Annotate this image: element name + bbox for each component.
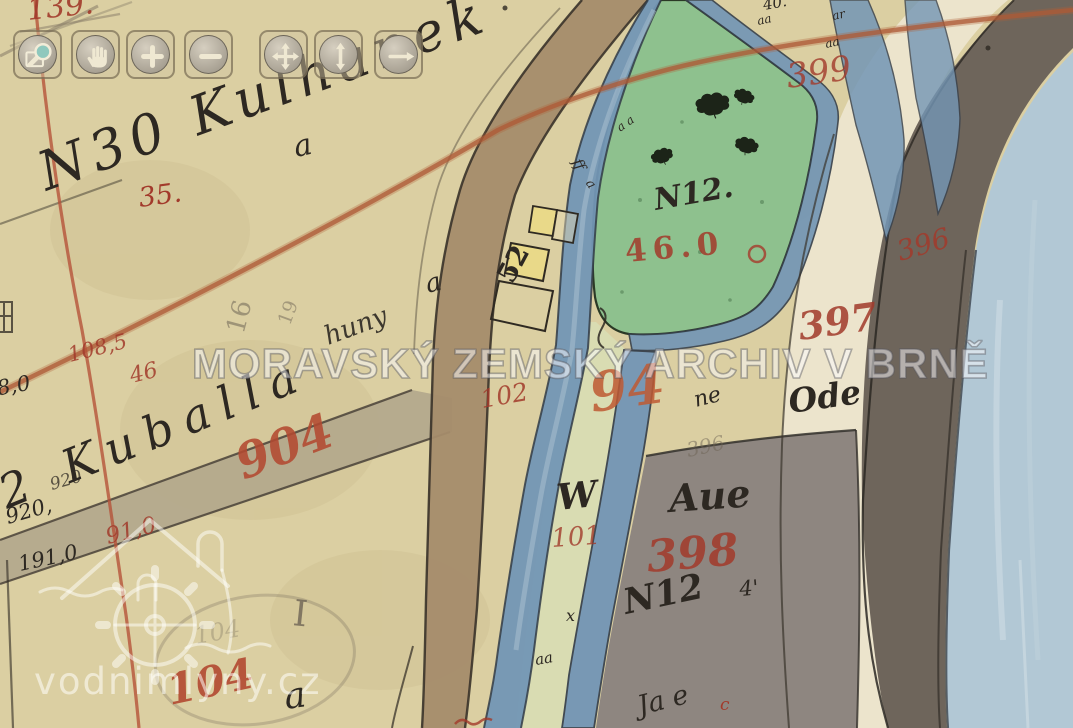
map-viewer[interactable]: 139.N30 Kulhaneka35.1619hunya2 Kuballa10… [0,0,1073,728]
pan-button[interactable] [71,30,120,79]
cadastral-map[interactable] [0,0,1073,728]
pan-vertical-button[interactable] [314,30,363,79]
zoom-out-button[interactable] [184,30,233,79]
pan-horizontal-button[interactable] [374,30,423,79]
zoom-region-button[interactable] [13,30,62,79]
move-button[interactable] [259,30,308,79]
zoom-in-button[interactable] [126,30,175,79]
